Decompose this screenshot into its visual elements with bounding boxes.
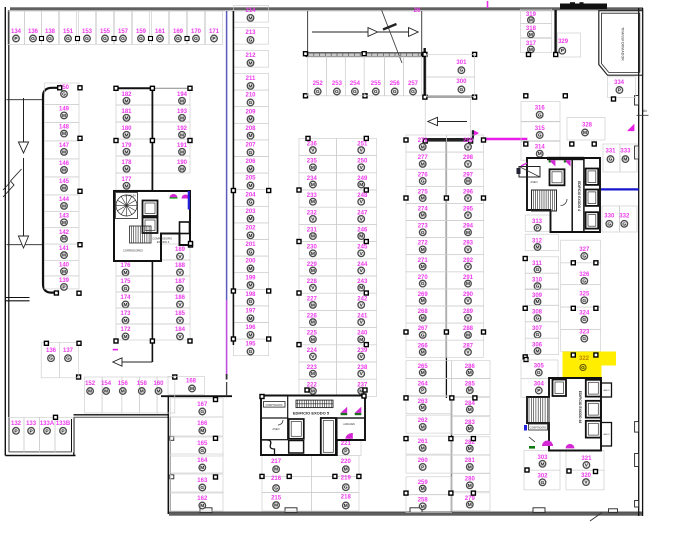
svg-text:333: 333 — [620, 149, 631, 155]
svg-text:161: 161 — [155, 29, 166, 35]
svg-text:TRANSFORMADOR: TRANSFORMADOR — [621, 27, 625, 61]
svg-text:M: M — [468, 426, 472, 432]
svg-text:204: 204 — [245, 192, 256, 198]
svg-text:M: M — [421, 247, 425, 253]
svg-text:184: 184 — [175, 327, 186, 333]
svg-text:M: M — [359, 337, 363, 343]
svg-text:M: M — [180, 98, 184, 104]
svg-text:G: G — [274, 486, 278, 492]
svg-text:M: M — [249, 117, 253, 123]
svg-text:M: M — [468, 446, 472, 452]
svg-text:EDIFICIO EXODO 4: EDIFICIO EXODO 4 — [577, 181, 581, 211]
svg-text:M: M — [249, 183, 253, 189]
svg-text:170: 170 — [191, 29, 202, 35]
svg-text:171: 171 — [209, 29, 220, 35]
svg-text:M: M — [421, 370, 425, 376]
svg-text:G: G — [581, 365, 585, 371]
svg-text:M: M — [180, 115, 184, 121]
svg-text:M: M — [536, 299, 540, 305]
svg-text:205: 205 — [245, 176, 256, 182]
svg-text:208: 208 — [245, 126, 256, 132]
svg-text:G: G — [49, 356, 53, 362]
svg-text:316: 316 — [535, 106, 546, 112]
svg-text:G: G — [536, 316, 540, 322]
svg-text:M: M — [200, 503, 204, 509]
svg-text:M: M — [421, 445, 425, 451]
svg-text:133: 133 — [26, 421, 37, 427]
svg-text:M: M — [125, 115, 129, 121]
svg-text:136: 136 — [46, 348, 57, 354]
svg-text:M: M — [125, 132, 129, 138]
svg-text:M: M — [274, 503, 278, 509]
svg-text:160: 160 — [153, 381, 164, 387]
svg-text:M: M — [274, 467, 278, 473]
svg-text:M: M — [311, 371, 315, 377]
svg-text:209: 209 — [245, 109, 256, 115]
svg-text:322: 322 — [579, 356, 590, 362]
svg-text:254: 254 — [350, 81, 361, 87]
svg-text:M: M — [249, 216, 253, 222]
svg-text:G: G — [541, 480, 545, 486]
svg-text:M: M — [466, 230, 470, 236]
svg-text:M: M — [421, 298, 425, 304]
svg-text:332: 332 — [619, 213, 630, 219]
svg-text:154: 154 — [101, 381, 112, 387]
svg-text:G: G — [609, 157, 613, 163]
svg-text:M: M — [311, 268, 315, 274]
svg-text:330: 330 — [604, 213, 615, 219]
svg-text:300: 300 — [456, 79, 467, 85]
svg-text:G: G — [393, 89, 397, 95]
svg-text:M: M — [62, 269, 66, 275]
svg-text:M: M — [125, 98, 129, 104]
svg-text:334: 334 — [614, 80, 625, 86]
svg-text:G: G — [103, 36, 107, 42]
svg-text:315: 315 — [535, 126, 546, 132]
svg-text:162: 162 — [197, 496, 208, 502]
svg-text:M: M — [468, 407, 472, 413]
svg-text:215: 215 — [271, 495, 282, 501]
svg-text:132: 132 — [11, 421, 22, 427]
svg-text:G: G — [48, 36, 52, 42]
svg-text:G: G — [121, 36, 125, 42]
svg-text:134: 134 — [11, 29, 22, 35]
svg-text:196: 196 — [245, 325, 256, 331]
svg-text:256: 256 — [390, 81, 401, 87]
svg-text:252: 252 — [313, 81, 324, 87]
svg-text:213: 213 — [245, 30, 256, 36]
svg-text:G: G — [31, 36, 35, 42]
svg-text:ASEO: ASEO — [272, 427, 279, 431]
svg-text:M: M — [311, 302, 315, 308]
svg-text:M: M — [249, 166, 253, 172]
svg-text:G: G — [249, 349, 253, 355]
svg-text:331: 331 — [605, 149, 616, 155]
svg-text:207: 207 — [245, 143, 256, 149]
svg-text:138: 138 — [45, 29, 56, 35]
svg-text:M: M — [62, 113, 66, 119]
svg-text:G: G — [249, 100, 253, 106]
svg-text:200: 200 — [245, 259, 256, 265]
svg-text:M: M — [125, 183, 129, 189]
svg-text:257: 257 — [408, 81, 419, 87]
svg-text:G: G — [139, 36, 143, 42]
svg-text:M: M — [62, 185, 66, 191]
svg-text:M: M — [421, 213, 425, 219]
svg-text:G: G — [124, 286, 128, 292]
svg-text:M: M — [124, 302, 128, 308]
svg-text:G: G — [335, 89, 339, 95]
svg-text:M: M — [125, 149, 129, 155]
svg-text:220: 220 — [341, 459, 352, 465]
svg-text:G: G — [421, 281, 425, 287]
svg-text:G: G — [582, 317, 586, 323]
svg-text:152: 152 — [85, 381, 96, 387]
svg-text:G: G — [176, 36, 180, 42]
svg-text:G: G — [200, 448, 204, 454]
svg-text:M: M — [140, 389, 144, 395]
svg-text:314: 314 — [535, 145, 546, 151]
svg-text:M: M — [466, 281, 470, 287]
svg-text:186: 186 — [175, 295, 186, 301]
svg-text:COMPTADORS: COMPTADORS — [266, 404, 283, 407]
svg-text:M: M — [88, 389, 92, 395]
svg-text:M: M — [124, 318, 128, 324]
svg-text:ASEO: ASEO — [530, 180, 537, 184]
svg-text:EDIFICIO EXODO 5: EDIFICIO EXODO 5 — [293, 410, 330, 415]
svg-text:137: 137 — [63, 348, 74, 354]
svg-text:M: M — [249, 15, 253, 21]
svg-text:G: G — [536, 332, 540, 338]
svg-text:M: M — [468, 370, 472, 376]
svg-text:167: 167 — [197, 402, 208, 408]
svg-text:172: 172 — [120, 327, 131, 333]
svg-text:M: M — [421, 405, 425, 411]
svg-text:157: 157 — [118, 29, 129, 35]
svg-text:165: 165 — [197, 441, 208, 447]
svg-text:M: M — [529, 32, 533, 38]
svg-text:M: M — [529, 18, 533, 24]
svg-text:169: 169 — [173, 29, 184, 35]
svg-text:M: M — [421, 264, 425, 270]
svg-text:EDIFICIO EXODO 46: EDIFICIO EXODO 46 — [578, 391, 582, 424]
svg-text:M: M — [62, 220, 66, 226]
svg-text:M: M — [468, 388, 472, 394]
svg-text:G: G — [249, 249, 253, 255]
svg-text:M: M — [421, 424, 425, 430]
svg-text:M: M — [344, 467, 348, 473]
svg-text:156: 156 — [118, 381, 129, 387]
svg-text:G: G — [421, 230, 425, 236]
svg-text:155: 155 — [100, 29, 111, 35]
svg-text:163: 163 — [197, 478, 208, 484]
svg-text:G: G — [421, 332, 425, 338]
svg-text:M: M — [249, 60, 253, 66]
svg-text:ALMACEN: ALMACEN — [343, 423, 355, 426]
svg-text:176: 176 — [120, 263, 131, 269]
svg-text:M: M — [311, 234, 315, 240]
svg-text:ASEO: ASEO — [603, 389, 609, 392]
svg-text:G: G — [200, 485, 204, 491]
svg-text:301: 301 — [456, 60, 467, 66]
svg-text:153: 153 — [82, 29, 93, 35]
svg-text:M: M — [468, 502, 472, 508]
svg-text:M: M — [249, 266, 253, 272]
svg-text:328: 328 — [582, 123, 593, 129]
svg-text:329: 329 — [558, 39, 569, 45]
svg-text:189: 189 — [175, 247, 186, 253]
svg-text:M: M — [466, 332, 470, 338]
svg-text:G: G — [582, 298, 586, 304]
svg-text:M: M — [344, 503, 348, 509]
svg-text:G: G — [62, 92, 66, 98]
svg-text:206: 206 — [245, 159, 256, 165]
svg-text:M: M — [311, 337, 315, 343]
svg-text:26: 26 — [414, 8, 421, 14]
svg-text:M: M — [421, 350, 425, 356]
svg-text:G: G — [249, 299, 253, 305]
svg-text:G: G — [538, 112, 542, 118]
svg-text:M: M — [421, 196, 425, 202]
svg-text:G: G — [538, 133, 542, 139]
svg-text:M: M — [62, 236, 66, 242]
svg-text:EXODO 4: EXODO 4 — [157, 240, 170, 244]
svg-text:M: M — [466, 179, 470, 185]
svg-text:133A: 133A — [40, 421, 55, 427]
svg-text:G: G — [460, 87, 464, 93]
svg-text:133B: 133B — [56, 421, 71, 427]
svg-text:168: 168 — [186, 379, 197, 385]
svg-text:M: M — [180, 149, 184, 155]
svg-text:166: 166 — [197, 421, 208, 427]
svg-text:136: 136 — [28, 29, 39, 35]
svg-text:G: G — [421, 179, 425, 185]
svg-text:M: M — [124, 334, 128, 340]
svg-text:221: 221 — [341, 441, 352, 447]
svg-text:G: G — [316, 89, 320, 95]
svg-text:M: M — [62, 131, 66, 137]
svg-text:G: G — [158, 36, 162, 42]
svg-text:M: M — [421, 315, 425, 321]
svg-text:253: 253 — [332, 81, 343, 87]
svg-text:211: 211 — [246, 76, 256, 82]
svg-text:M: M — [62, 149, 66, 155]
svg-text:COMPTADORS: COMPTADORS — [530, 426, 547, 429]
svg-text:255: 255 — [371, 81, 382, 87]
svg-text:214: 214 — [245, 8, 256, 14]
svg-text:M: M — [623, 157, 627, 163]
svg-text:G: G — [344, 485, 348, 491]
svg-text:M: M — [180, 166, 184, 172]
svg-text:195: 195 — [245, 342, 256, 348]
svg-text:158: 158 — [137, 381, 148, 387]
svg-text:217: 217 — [271, 459, 282, 465]
svg-text:219: 219 — [341, 476, 352, 482]
svg-text:M: M — [62, 253, 66, 259]
svg-text:Ax: Ax — [643, 109, 647, 113]
svg-text:175: 175 — [120, 279, 131, 285]
svg-text:M: M — [249, 332, 253, 338]
svg-text:M: M — [421, 504, 425, 510]
svg-text:G: G — [194, 36, 198, 42]
svg-text:M: M — [200, 465, 204, 471]
svg-text:M: M — [249, 283, 253, 289]
svg-text:198: 198 — [245, 292, 256, 298]
svg-text:M: M — [124, 270, 128, 276]
svg-text:G: G — [582, 254, 586, 260]
svg-text:216: 216 — [271, 476, 282, 482]
svg-text:202: 202 — [245, 226, 256, 232]
svg-text:M: M — [200, 428, 204, 434]
svg-text:174: 174 — [120, 295, 131, 301]
svg-text:G: G — [411, 89, 415, 95]
svg-text:M: M — [190, 386, 194, 392]
svg-text:G: G — [537, 370, 541, 376]
svg-text:G: G — [200, 409, 204, 415]
svg-text:M: M — [157, 389, 161, 395]
svg-text:M: M — [421, 486, 425, 492]
svg-text:159: 159 — [136, 29, 147, 35]
svg-text:G: G — [536, 267, 540, 273]
svg-text:M: M — [359, 285, 363, 291]
svg-text:G: G — [622, 221, 626, 227]
svg-text:G: G — [66, 356, 70, 362]
svg-text:M: M — [359, 234, 363, 240]
svg-text:321: 321 — [581, 456, 592, 462]
svg-text:G: G — [353, 89, 357, 95]
svg-text:M: M — [180, 132, 184, 138]
svg-text:M: M — [311, 251, 315, 257]
svg-text:G: G — [85, 36, 89, 42]
svg-text:ASEO: ASEO — [603, 433, 609, 436]
svg-text:185: 185 — [175, 311, 186, 317]
svg-text:M: M — [311, 388, 315, 394]
svg-text:CORREDORES: CORREDORES — [123, 249, 143, 253]
svg-text:G: G — [249, 37, 253, 43]
svg-text:203: 203 — [245, 209, 256, 215]
svg-text:M: M — [311, 182, 315, 188]
svg-text:M: M — [468, 483, 472, 489]
svg-text:G: G — [460, 68, 464, 74]
svg-text:M: M — [359, 182, 363, 188]
svg-text:M: M — [311, 165, 315, 171]
svg-text:G: G — [582, 336, 586, 342]
svg-text:M: M — [468, 464, 472, 470]
svg-text:M: M — [249, 83, 253, 89]
svg-text:210: 210 — [245, 93, 256, 99]
svg-text:218: 218 — [341, 494, 352, 500]
svg-text:197: 197 — [245, 309, 256, 315]
svg-text:151: 151 — [63, 29, 74, 35]
svg-text:M: M — [125, 166, 129, 172]
svg-text:164: 164 — [197, 458, 208, 464]
svg-text:G: G — [249, 200, 253, 206]
svg-text:M: M — [421, 161, 425, 167]
svg-text:G: G — [249, 150, 253, 156]
svg-text:M: M — [536, 349, 540, 355]
svg-text:M: M — [583, 130, 587, 136]
svg-text:199: 199 — [245, 275, 256, 281]
svg-text:SP-AS-3A: SP-AS-3A — [124, 194, 136, 198]
svg-text:M: M — [62, 203, 66, 209]
svg-text:173: 173 — [120, 311, 131, 317]
svg-text:G: G — [607, 221, 611, 227]
svg-text:188: 188 — [175, 263, 186, 269]
svg-text:M: M — [249, 316, 253, 322]
svg-text:M: M — [249, 133, 253, 139]
svg-text:G: G — [374, 89, 378, 95]
svg-text:M: M — [62, 167, 66, 173]
svg-text:M: M — [541, 461, 545, 467]
svg-text:M: M — [121, 389, 125, 395]
svg-text:201: 201 — [245, 242, 256, 248]
svg-text:M: M — [104, 389, 108, 395]
svg-text:M: M — [538, 151, 542, 157]
svg-text:M: M — [311, 199, 315, 205]
svg-text:G: G — [66, 36, 70, 42]
svg-text:M: M — [249, 233, 253, 239]
svg-text:M: M — [421, 144, 425, 150]
svg-text:G: G — [582, 278, 586, 284]
svg-text:212: 212 — [245, 53, 256, 59]
svg-text:M: M — [536, 245, 540, 251]
svg-text:M: M — [311, 320, 315, 326]
svg-text:187: 187 — [175, 279, 186, 285]
